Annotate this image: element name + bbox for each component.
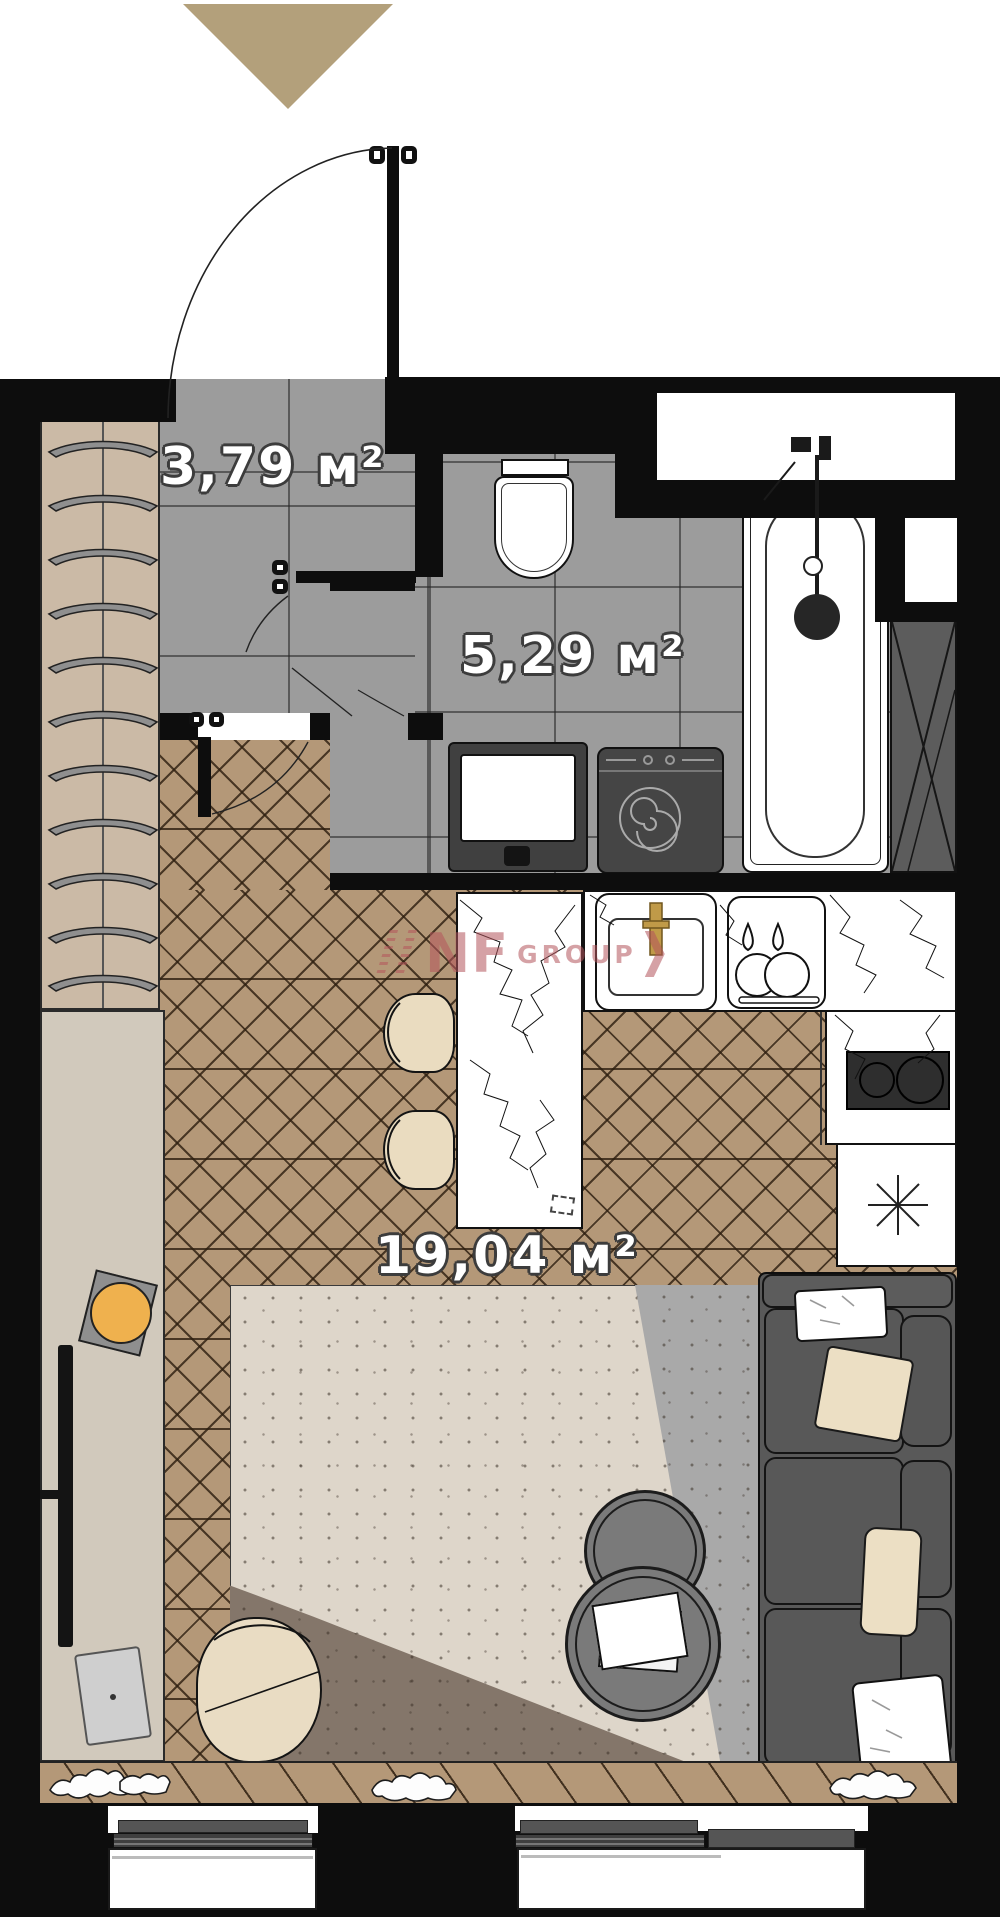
entrance-arrow-icon [183,4,393,109]
entry-door-hinge [401,146,417,164]
entry-door-hinge [369,146,385,164]
toilet-bowl-line [501,483,567,572]
door-jamb [388,421,416,453]
counter-edge-line [820,1012,822,1145]
watermark-logo: NF GROUP [375,930,665,978]
window-frame [520,1820,698,1834]
entry-door-leaf [387,146,399,421]
wall [310,713,330,740]
bath-door-leaf [296,571,416,583]
washing-machine [597,747,724,874]
window-frame [708,1829,855,1848]
bathtub-basin [765,498,865,858]
window-frame [113,1833,313,1848]
hall-door-leaf [198,737,211,817]
table-books [591,1592,688,1671]
hall-door-hinge [209,712,224,727]
window-sill-line [112,1856,313,1859]
fridge [836,1143,957,1267]
dining-chair [383,993,455,1073]
pillow-beige [859,1527,923,1638]
wall [330,873,957,890]
living-area-label: 19,04 м² [375,1226,639,1286]
door-jamb [408,713,443,740]
pouf-chair [196,1617,322,1763]
cooktop [846,1051,950,1110]
bathroom-area-label: 5,29 м² [460,626,686,686]
living-floor [160,740,330,890]
hall-door-hinge [189,712,204,727]
washer-panel-line [599,770,722,772]
vanity-sink [460,754,576,842]
wall-left [0,379,40,1803]
watermark-arrow-icon [645,931,665,977]
vanity-faucet [504,846,530,866]
console-decor-lamp [90,1282,152,1344]
wardrobe-rail [102,419,104,1008]
bath-door-hinge [272,579,288,594]
watermark-suffix: GROUP [517,940,637,969]
wall-partition [415,421,443,577]
watermark-brand: NF [425,930,509,978]
floor-plan: NF GROUP 3,79 м² 5,29 м² 19,04 м² [0,0,1000,1917]
wall-niche [905,518,957,602]
watermark-stripes-icon [375,930,417,978]
tablet-button [110,1694,116,1700]
vent-shaft [890,620,957,873]
wardrobe [40,417,160,1010]
window-sill-floor [40,1761,957,1803]
island-symbol [550,1194,575,1215]
tv [58,1345,73,1647]
wall-right [957,377,1000,1803]
dishwasher [727,896,826,1009]
toilet-cistern [501,459,569,476]
window-frame [515,1834,705,1848]
pillow-beige [813,1345,914,1443]
tv-mount [40,1490,60,1499]
pillow-white [794,1286,889,1343]
bath-door-hinge [272,560,288,575]
hall-area-label: 3,79 м² [160,437,386,497]
dining-chair [383,1110,455,1190]
wall-niche [657,393,955,480]
window-frame [118,1820,308,1833]
window-sill-line [521,1855,721,1858]
